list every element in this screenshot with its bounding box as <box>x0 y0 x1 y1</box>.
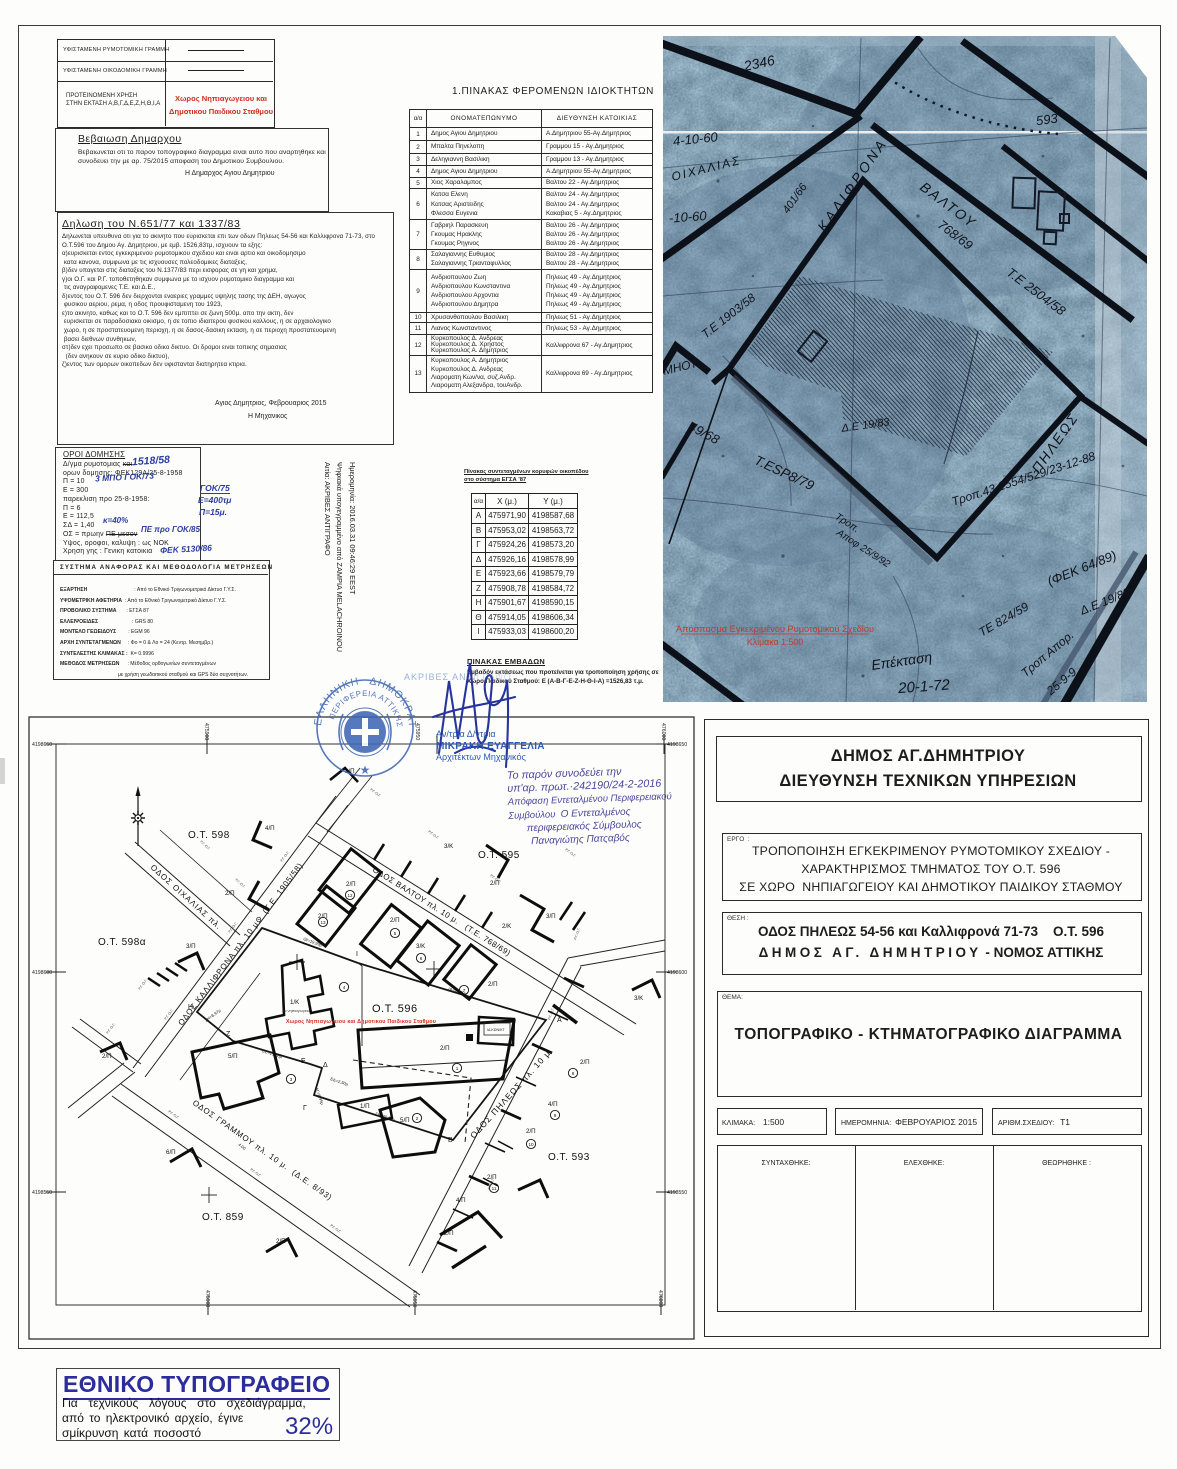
svg-text:3: 3 <box>290 1077 293 1082</box>
svg-text:Κλίμακα 1:500: Κλίμακα 1:500 <box>747 637 803 647</box>
svg-text:475900: 475900 <box>204 1290 210 1307</box>
svg-text:3/Π: 3/Π <box>186 943 196 950</box>
svg-text:4: 4 <box>343 985 346 990</box>
svg-text:4198650: 4198650 <box>32 742 52 748</box>
svg-text:2/Π: 2/Π <box>580 1059 590 1066</box>
svg-text:476000: 476000 <box>657 1290 663 1307</box>
svg-text:ΕΔ=2,50μ: ΕΔ=2,50μ <box>330 1076 350 1087</box>
svg-text:9: 9 <box>554 1113 557 1118</box>
svg-text:Ρ.Γ.-Ο.Γ.: Ρ.Γ.-Ο.Γ. <box>106 1022 117 1034</box>
svg-text:Ο.Τ. 859: Ο.Τ. 859 <box>202 1212 244 1223</box>
svg-text:4/Π: 4/Π <box>265 825 275 832</box>
svg-text:4198550: 4198550 <box>32 1190 52 1196</box>
svg-text:4/Π: 4/Π <box>456 1197 466 1204</box>
svg-text:11: 11 <box>492 1186 497 1191</box>
svg-text:2/Π: 2/Π <box>444 1230 454 1237</box>
svg-text:ΟΔΟΣ ΠΗΛΕΩΣ πλ. 10 μ.: ΟΔΟΣ ΠΗΛΕΩΣ πλ. 10 μ. <box>468 1045 555 1140</box>
svg-text:6/Π: 6/Π <box>166 1149 176 1156</box>
svg-text:Απόσπασμα Εγκεκριμένου Ρυμοτομ: Απόσπασμα Εγκεκριμένου Ρυμοτομικού Σχεδί… <box>676 624 874 634</box>
svg-text:Ρ.Γ.-Ο.Γ.: Ρ.Γ.-Ο.Γ. <box>564 848 576 859</box>
svg-text:-10-60: -10-60 <box>668 208 707 226</box>
svg-text:593: 593 <box>1035 110 1059 128</box>
svg-text:ΖΗ=8,97μ: ΖΗ=8,97μ <box>204 1007 222 1022</box>
svg-text:5: 5 <box>394 931 397 936</box>
svg-text:2/Κ: 2/Κ <box>502 923 512 930</box>
svg-text:ΟΔΟΣ ΟΙΧΑΛΙΑΣ πλ.: ΟΔΟΣ ΟΙΧΑΛΙΑΣ πλ. <box>149 863 224 932</box>
svg-text:2/Π: 2/Π <box>526 1128 536 1135</box>
svg-text:8: 8 <box>572 1071 575 1076</box>
svg-text:Β: Β <box>448 1137 453 1144</box>
svg-text:10: 10 <box>528 1142 534 1147</box>
svg-text:Ο.Τ. 596: Ο.Τ. 596 <box>372 1003 418 1015</box>
svg-text:2/Π: 2/Π <box>440 1045 450 1052</box>
svg-text:Ρ.Γ.-Ο.Γ.: Ρ.Γ.-Ο.Γ. <box>427 830 439 841</box>
svg-text:4198600: 4198600 <box>32 970 52 976</box>
svg-text:3/Π: 3/Π <box>546 913 556 920</box>
svg-text:Δ: Δ <box>323 1062 328 1069</box>
svg-text:7: 7 <box>463 988 466 993</box>
svg-text:5/Π: 5/Π <box>228 1053 238 1060</box>
svg-text:Ι: Ι <box>356 951 358 958</box>
svg-text:Γ: Γ <box>303 1105 307 1112</box>
svg-text:4198650: 4198650 <box>667 742 687 748</box>
svg-text:Ο.Τ. 593: Ο.Τ. 593 <box>548 1152 590 1163</box>
svg-text:Ο.Τ. 598α: Ο.Τ. 598α <box>98 937 146 948</box>
svg-text:2: 2 <box>416 1116 419 1121</box>
svg-text:12: 12 <box>347 893 353 898</box>
svg-text:3/Κ: 3/Κ <box>634 995 644 1002</box>
svg-text:2/Π: 2/Π <box>488 981 498 988</box>
svg-text:4198600: 4198600 <box>667 970 687 976</box>
svg-text:4198550: 4198550 <box>667 1190 687 1196</box>
svg-text:475900: 475900 <box>203 723 209 740</box>
svg-text:Ρ.Γ.-Ο.Γ.: Ρ.Γ.-Ο.Γ. <box>138 978 149 990</box>
svg-text:1: 1 <box>456 1066 459 1071</box>
svg-text:476000: 476000 <box>660 723 666 740</box>
svg-text:Ζ: Ζ <box>226 1031 231 1038</box>
svg-text:ΟΔΟΣ ΓΡΑΜΜΟΥ πλ. 10 μ. (Δ.Ε.: ΟΔΟΣ ΓΡΑΜΜΟΥ πλ. 10 μ. (Δ.Ε. 8/93) <box>191 1098 334 1202</box>
svg-text:6: 6 <box>420 956 423 961</box>
svg-text:★: ★ <box>360 763 371 777</box>
svg-text:2/Π: 2/Π <box>276 1238 286 1245</box>
svg-text:Ο.Τ. 595: Ο.Τ. 595 <box>478 850 520 861</box>
svg-text:3/Κ: 3/Κ <box>416 943 426 950</box>
svg-text:3ο νηπιαγωγειο: 3ο νηπιαγωγειο <box>282 1008 311 1013</box>
svg-text:Ε: Ε <box>301 1058 306 1065</box>
svg-text:Ρ.Γ.-Ο.Γ.: Ρ.Γ.-Ο.Γ. <box>280 850 291 862</box>
svg-text:ΙΔ.ΚΩΝ/ΚΤ: ΙΔ.ΚΩΝ/ΚΤ <box>487 1028 505 1032</box>
svg-text:3/Κ: 3/Κ <box>444 843 454 850</box>
svg-text:Ρ.Γ.-Ο.Γ.: Ρ.Γ.-Ο.Γ. <box>234 878 246 889</box>
svg-text:2/Π: 2/Π <box>102 1053 112 1060</box>
svg-text:Χωρος Νηπιαγωγειου και Δημοτικ: Χωρος Νηπιαγωγειου και Δημοτικου Παιδικο… <box>286 1019 436 1025</box>
svg-text:2/Π: 2/Π <box>225 890 235 897</box>
svg-text:Α: Α <box>557 1017 562 1024</box>
svg-text:1/Π: 1/Π <box>360 1103 370 1110</box>
svg-text:2/Π: 2/Π <box>346 881 356 888</box>
svg-text:2/Π: 2/Π <box>390 917 400 924</box>
svg-text:Ρ.Γ.-Ο.Γ.: Ρ.Γ.-Ο.Γ. <box>199 840 211 851</box>
svg-text:1/Κ: 1/Κ <box>290 999 300 1006</box>
svg-text:Ο.Τ. 598: Ο.Τ. 598 <box>188 830 230 841</box>
svg-text:13: 13 <box>320 920 326 925</box>
svg-text:5/Π: 5/Π <box>400 1117 410 1124</box>
svg-text:4/Π: 4/Π <box>548 1101 558 1108</box>
